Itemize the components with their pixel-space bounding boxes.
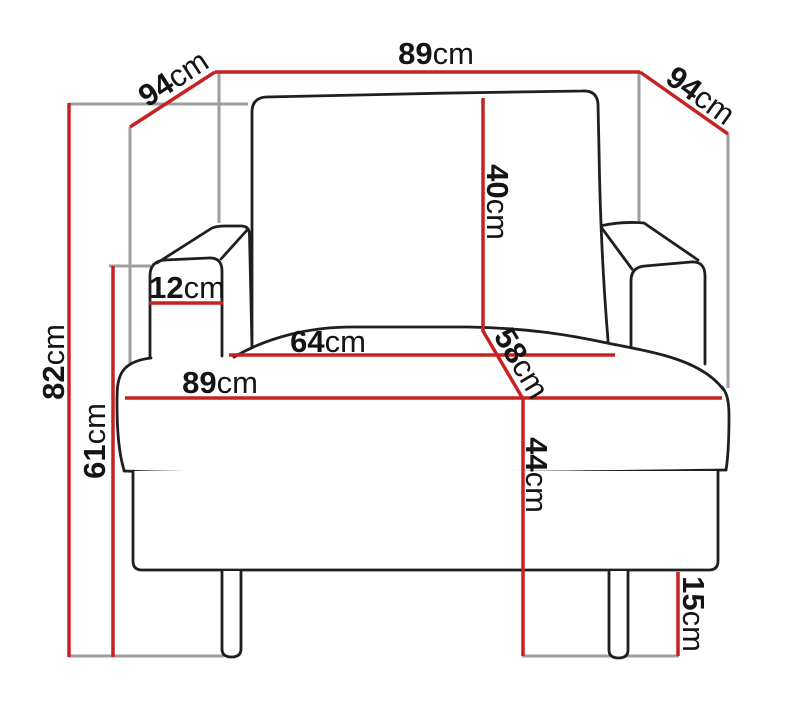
label-backrest-height: 40cm [480, 164, 515, 240]
label-seat-width: 64cm [290, 324, 366, 359]
label-depth-right: 94cm [660, 59, 742, 132]
armchair-dimension-diagram: 89cm 94cm 94cm 40cm 58cm 44cm 64cm 89cm … [0, 0, 800, 721]
right-leg-fill [609, 571, 628, 658]
right-armrest-fill [600, 222, 705, 364]
base-fill [133, 471, 718, 570]
label-leg-height: 15cm [676, 576, 711, 652]
diagram-canvas: 89cm 94cm 94cm 40cm 58cm 44cm 64cm 89cm … [0, 0, 800, 721]
label-overall-height: 82cm [36, 324, 71, 400]
label-overall-width-top: 89cm [398, 36, 474, 71]
label-armrest-height: 61cm [77, 403, 112, 479]
label-seat-height: 44cm [519, 437, 554, 513]
backrest-cushion-fill [252, 91, 608, 353]
left-leg-fill [222, 571, 241, 657]
label-armrest-width: 12cm [149, 270, 225, 305]
label-overall-width-seat: 89cm [182, 365, 258, 400]
